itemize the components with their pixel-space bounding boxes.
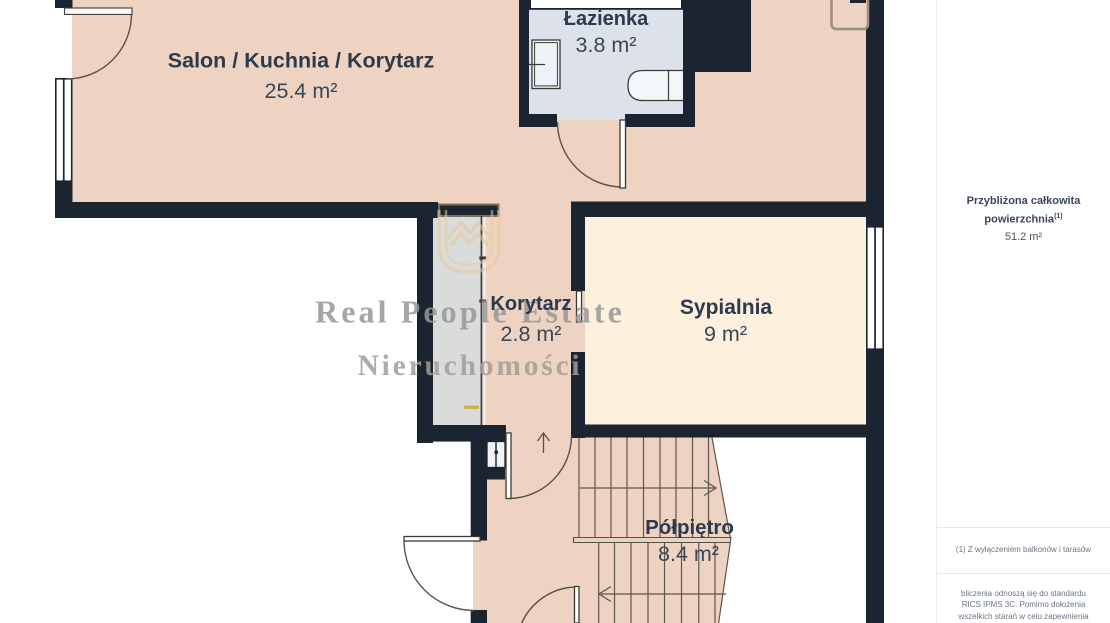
svg-text:Łazienka: Łazienka [564,8,649,30]
svg-text:25.4 m²: 25.4 m² [265,79,338,103]
svg-text:Korytarz: Korytarz [490,293,571,315]
svg-text:Real People Estate: Real People Estate [315,294,625,330]
svg-text:Nieruchomości: Nieruchomości [358,350,583,382]
svg-text:9 m²: 9 m² [704,322,747,346]
svg-text:8.4 m²: 8.4 m² [658,542,719,566]
svg-text:Półpiętro: Półpiętro [645,516,734,539]
svg-text:Salon / Kuchnia / Korytarz: Salon / Kuchnia / Korytarz [168,49,434,73]
svg-text:2.8 m²: 2.8 m² [501,322,562,346]
svg-text:Sypialnia: Sypialnia [680,296,773,319]
svg-text:3.8 m²: 3.8 m² [576,33,637,57]
